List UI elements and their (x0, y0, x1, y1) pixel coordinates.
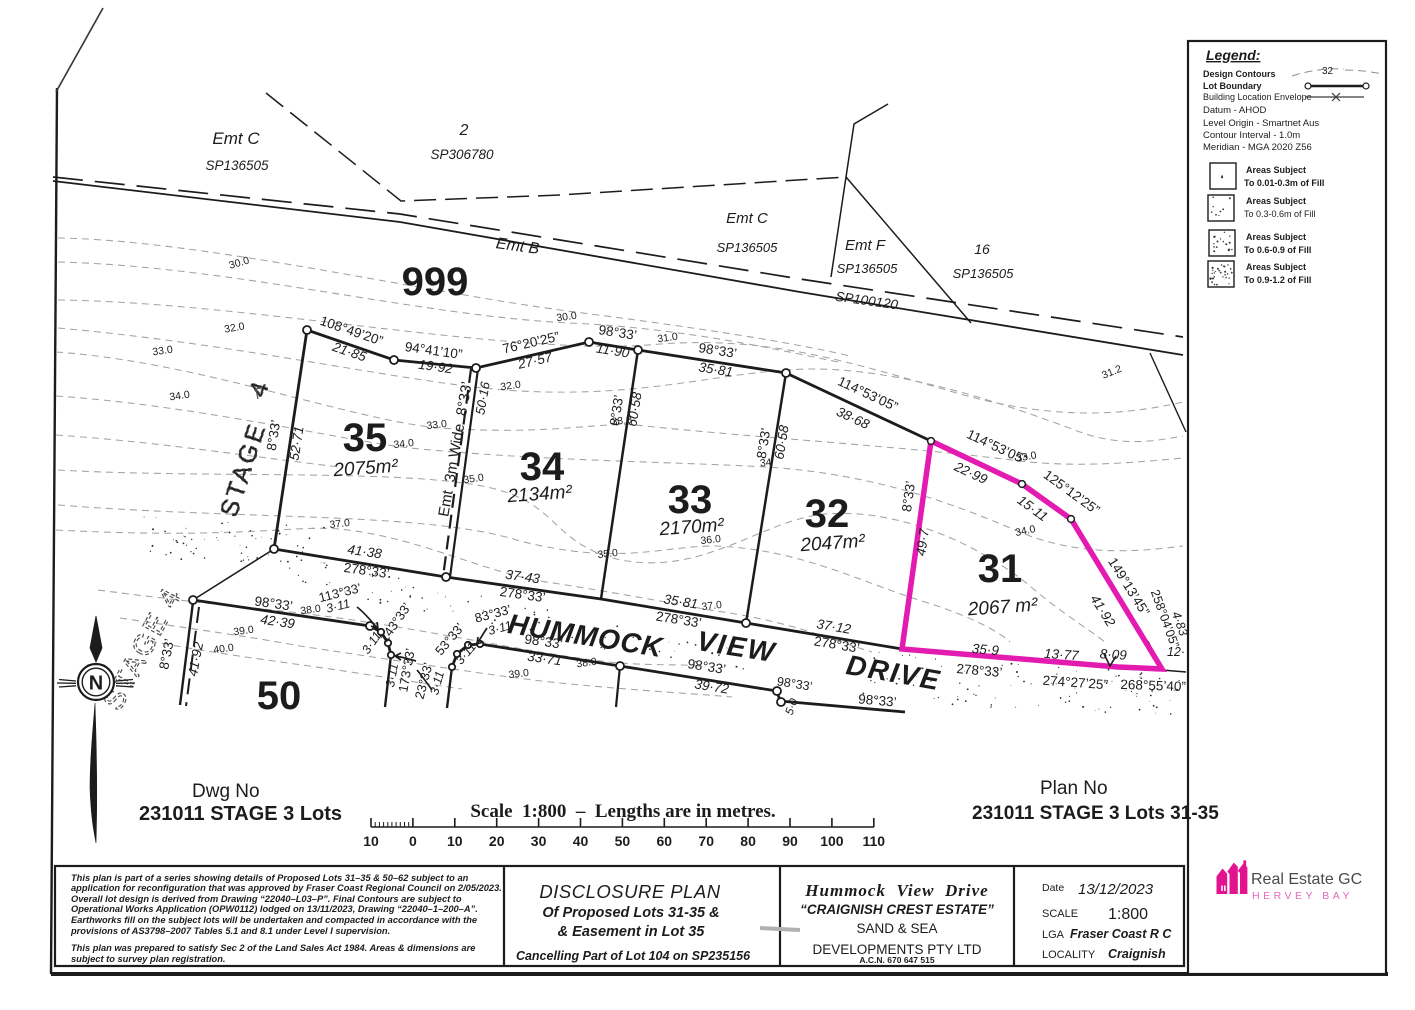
svg-text:Building Location Envelope: Building Location Envelope (1203, 92, 1312, 102)
svg-text:0: 0 (409, 833, 417, 849)
svg-text:Dwg No: Dwg No (192, 781, 260, 802)
svg-text:12·: 12· (1167, 645, 1185, 659)
svg-text:31: 31 (978, 547, 1023, 591)
svg-text:35: 35 (343, 416, 388, 460)
svg-text:To 0.3-0.6m of Fill: To 0.3-0.6m of Fill (1244, 209, 1316, 219)
svg-text:35·9: 35·9 (971, 641, 1000, 658)
svg-text:Plan No: Plan No (1040, 778, 1108, 799)
svg-text:Design Contours: Design Contours (1203, 69, 1276, 79)
svg-text:provisions of AS3798–2007 Tabl: provisions of AS3798–2007 Tables 5.1 and… (70, 926, 390, 936)
svg-text:231011 STAGE 3 Lots 31-35: 231011 STAGE 3 Lots 31-35 (972, 803, 1219, 824)
svg-text:231011 STAGE 3 Lots: 231011 STAGE 3 Lots (139, 803, 342, 825)
svg-text:HERVEY BAY: HERVEY BAY (1252, 890, 1353, 902)
svg-text:This plan is part of a series: This plan is part of a series showing de… (71, 873, 469, 883)
svg-text:Emt C: Emt C (726, 210, 768, 227)
svg-text:Cancelling Part of Lot 104 on: Cancelling Part of Lot 104 on SP235156 (516, 949, 751, 963)
svg-text:Lot Boundary: Lot Boundary (1203, 81, 1262, 91)
svg-text:2: 2 (459, 122, 469, 139)
svg-text:34.0: 34.0 (393, 437, 415, 451)
svg-text:To 0.6-0.9 of Fill: To 0.6-0.9 of Fill (1244, 245, 1311, 255)
svg-text:Operational Works Application: Operational Works Application (OPW0112) … (71, 904, 478, 914)
svg-text:Earthworks fill on the subject: Earthworks fill on the subject lots will… (71, 915, 477, 925)
svg-text:Meridian - MGA 2020 Z56: Meridian - MGA 2020 Z56 (1203, 142, 1312, 153)
svg-text:SCALE: SCALE (1042, 908, 1078, 920)
svg-text:Date: Date (1042, 882, 1064, 894)
svg-text:999: 999 (402, 260, 469, 304)
svg-text:SP306780: SP306780 (430, 147, 494, 162)
svg-text:SAND & SEA: SAND & SEA (856, 921, 937, 936)
svg-text:40: 40 (573, 833, 589, 849)
svg-text:Areas Subject: Areas Subject (1246, 196, 1306, 206)
svg-text:Real Estate GC: Real Estate GC (1251, 871, 1362, 888)
svg-text:50: 50 (615, 833, 631, 849)
svg-text:LGA: LGA (1042, 929, 1065, 941)
svg-text:100: 100 (820, 833, 844, 849)
svg-text:Overall lot design is derived: Overall lot design is derived from Drawi… (71, 894, 462, 904)
svg-text:37.0: 37.0 (329, 517, 351, 531)
svg-text:10: 10 (363, 833, 379, 849)
svg-text:20: 20 (489, 833, 505, 849)
svg-text:Areas Subject: Areas Subject (1246, 262, 1306, 272)
svg-text:subject to survey plan registr: subject to survey plan registration. (71, 954, 225, 964)
svg-text:110: 110 (863, 833, 886, 849)
svg-text:60: 60 (657, 833, 673, 849)
svg-text:13/12/2023: 13/12/2023 (1078, 881, 1154, 898)
svg-text:To 0.01-0.3m of Fill: To 0.01-0.3m of Fill (1244, 178, 1324, 188)
svg-text:Emt F: Emt F (845, 237, 886, 254)
svg-text:10: 10 (447, 833, 463, 849)
svg-text:37.0: 37.0 (701, 599, 723, 613)
svg-text:Level Origin - Smartnet Aus: Level Origin - Smartnet Aus (1203, 118, 1319, 129)
svg-text:SP136505: SP136505 (717, 240, 778, 255)
svg-text:32: 32 (805, 492, 850, 536)
svg-text:Contour Interval - 1.0m: Contour Interval - 1.0m (1203, 130, 1300, 141)
svg-text:Datum - AHOD: Datum - AHOD (1203, 105, 1266, 116)
svg-text:268°55’40”: 268°55’40” (1120, 677, 1186, 694)
svg-text:“CRAIGNISH CREST ESTATE”: “CRAIGNISH CREST ESTATE” (800, 902, 994, 917)
svg-text:LOCALITY: LOCALITY (1042, 949, 1096, 961)
svg-text:A.C.N. 670 647 515: A.C.N. 670 647 515 (859, 955, 934, 965)
svg-text:16: 16 (974, 241, 990, 257)
svg-text:SP136505: SP136505 (205, 158, 269, 173)
svg-text:Hummock View Drive: Hummock View Drive (804, 881, 988, 900)
svg-text:39.0: 39.0 (508, 667, 530, 681)
svg-text:50: 50 (257, 674, 302, 718)
svg-text:& Easement in Lot 35: & Easement in Lot 35 (558, 924, 706, 940)
svg-text:Areas Subject: Areas Subject (1246, 232, 1306, 242)
svg-text:SP136505: SP136505 (837, 261, 898, 276)
svg-text:Emt C: Emt C (212, 129, 260, 148)
svg-text:90: 90 (782, 833, 798, 849)
svg-text:Fraser Coast R C: Fraser Coast R C (1070, 927, 1172, 941)
svg-text:This plan was prepared to sati: This plan was prepared to satisfy Sec 2 … (71, 943, 475, 953)
svg-text:To 0.9-1.2 of Fill: To 0.9-1.2 of Fill (1244, 275, 1311, 285)
svg-text:Craignish: Craignish (1108, 947, 1166, 961)
svg-text:application for reconfiguratio: application for reconfiguration that was… (71, 883, 502, 893)
svg-text:Legend:: Legend: (1206, 47, 1260, 63)
svg-text:13·77: 13·77 (1044, 646, 1080, 663)
svg-text:SP136505: SP136505 (953, 266, 1014, 281)
svg-text:Of Proposed Lots 31-35 &: Of Proposed Lots 31-35 & (542, 905, 719, 921)
svg-text:Areas Subject: Areas Subject (1246, 165, 1306, 175)
svg-text:30: 30 (531, 833, 547, 849)
svg-text:70: 70 (698, 833, 714, 849)
svg-text:32: 32 (1322, 66, 1334, 77)
svg-text:DISCLOSURE PLAN: DISCLOSURE PLAN (539, 881, 720, 902)
svg-text:1:800: 1:800 (1108, 906, 1148, 923)
svg-text:33.0: 33.0 (426, 418, 448, 432)
svg-text:N: N (89, 673, 103, 695)
svg-text:80: 80 (740, 833, 756, 849)
